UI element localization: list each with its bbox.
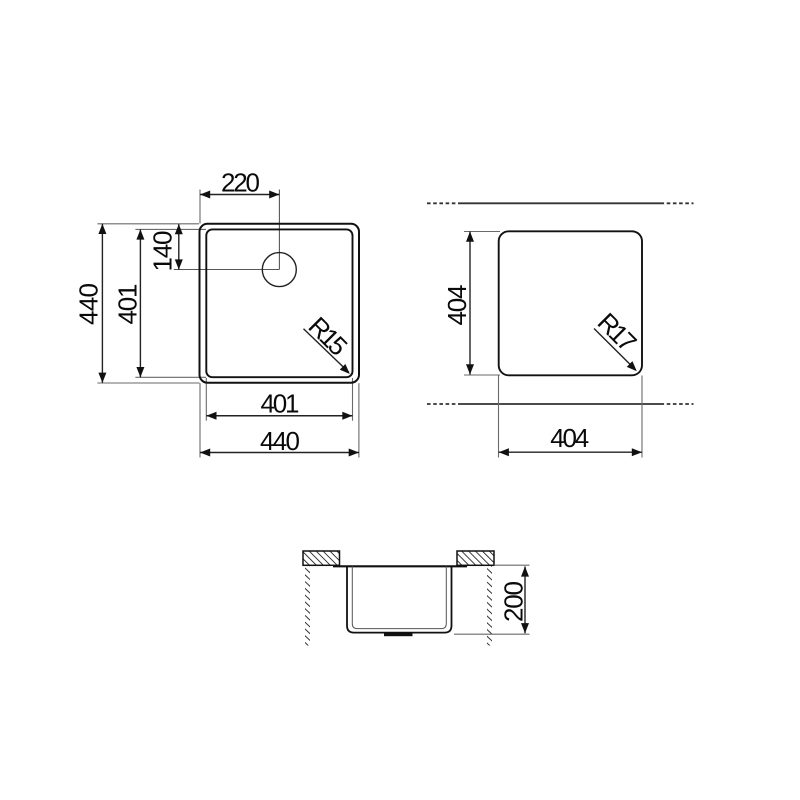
svg-text:440: 440	[74, 283, 104, 325]
svg-text:401: 401	[261, 388, 300, 418]
svg-text:404: 404	[442, 285, 472, 326]
svg-text:220: 220	[221, 168, 260, 198]
svg-text:401: 401	[113, 284, 143, 325]
svg-text:404: 404	[550, 423, 589, 453]
svg-text:140: 140	[148, 231, 178, 272]
svg-text:200: 200	[499, 581, 529, 622]
svg-text:440: 440	[260, 426, 300, 456]
